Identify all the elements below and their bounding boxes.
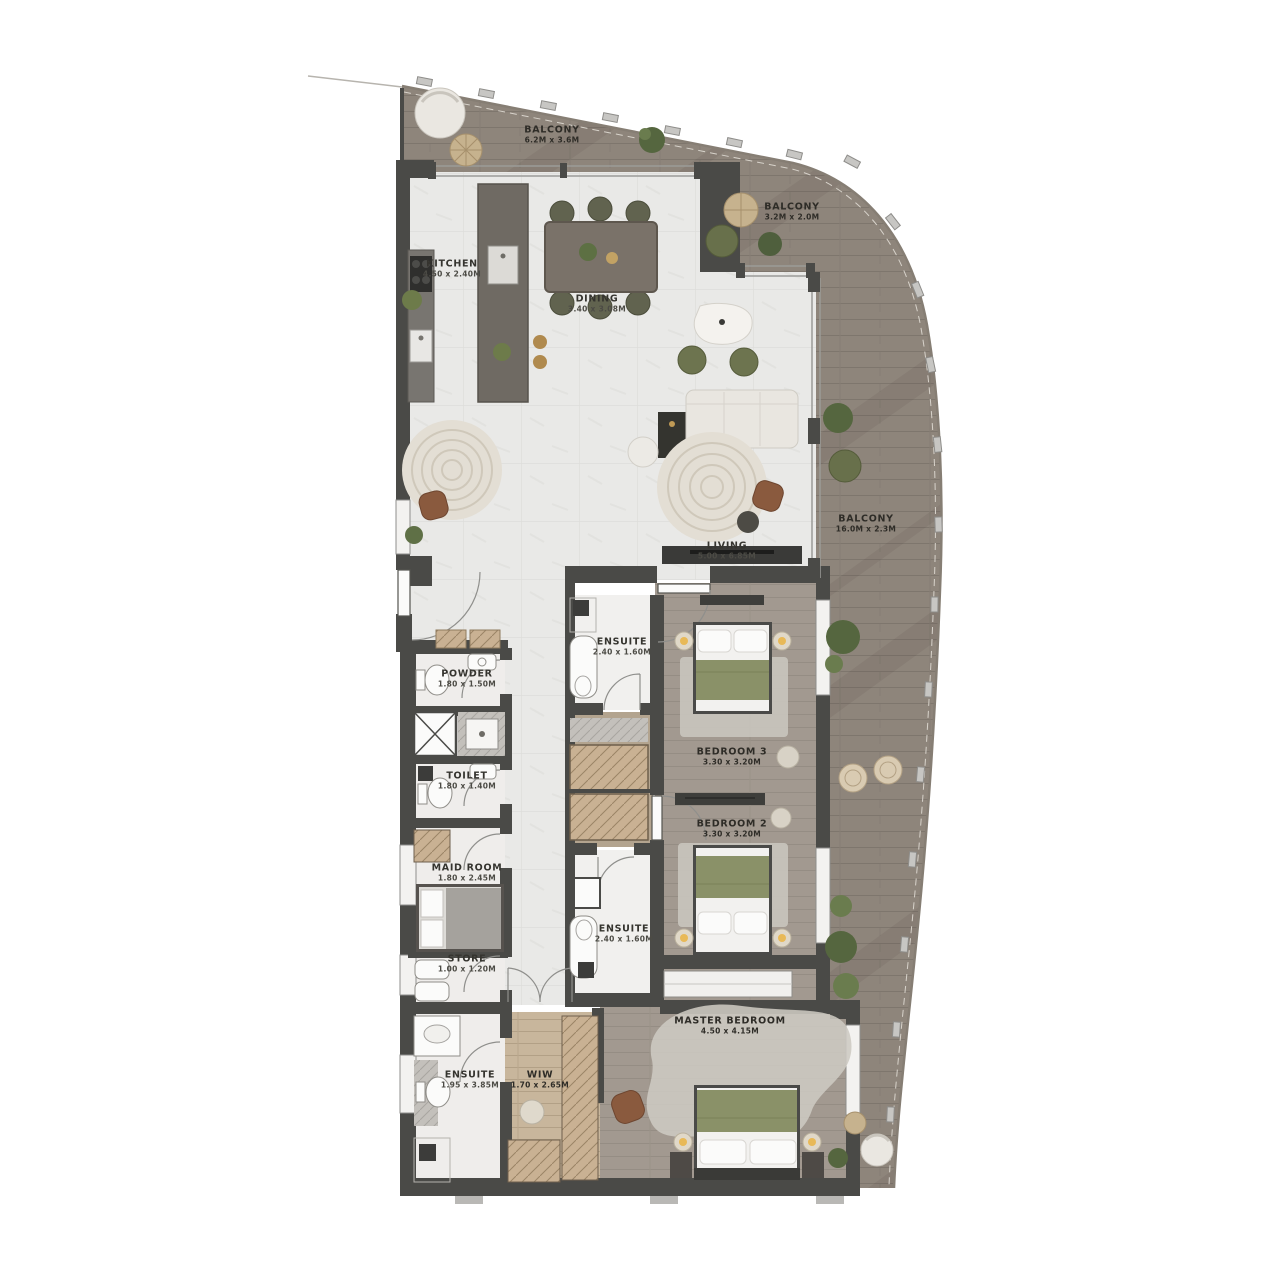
master-lamp-right-glow bbox=[808, 1138, 816, 1146]
kitchen-island bbox=[478, 184, 528, 402]
master-bed bbox=[694, 1085, 800, 1180]
wardrobe-divider bbox=[565, 789, 653, 793]
bedroom2-dresser bbox=[675, 793, 765, 805]
deck-chair-1 bbox=[839, 764, 867, 792]
kitchen-sink bbox=[410, 330, 432, 362]
ensuite2-shaft-box bbox=[574, 878, 600, 908]
deck-beanbag-upper-right bbox=[706, 225, 738, 257]
tv-console bbox=[662, 546, 802, 564]
deck-plant-2 bbox=[830, 895, 852, 917]
bedroom2-lamp-left-glow bbox=[680, 934, 688, 942]
island-sink bbox=[488, 246, 518, 284]
dining-centerpiece bbox=[579, 243, 597, 261]
wall-living-bedroom-a bbox=[575, 566, 657, 583]
bedroom2-door-leaf bbox=[652, 796, 662, 840]
wall-ensuitemaster-wiw-a bbox=[500, 1008, 512, 1038]
wardrobe-bedroom2 bbox=[570, 794, 648, 840]
window-store bbox=[400, 955, 416, 995]
window-bedroom3 bbox=[816, 600, 830, 695]
floor-plan-drawing bbox=[0, 0, 1280, 1280]
master-lamp-left-glow bbox=[679, 1138, 687, 1146]
wall-mid-vertical-a bbox=[650, 595, 664, 795]
bar-stool-2 bbox=[533, 355, 547, 369]
wiw-pouf bbox=[520, 1100, 544, 1124]
island-plant bbox=[493, 343, 511, 361]
deck-plant-1 bbox=[823, 403, 853, 433]
bedroom2-bed bbox=[693, 845, 772, 955]
deck-lounge-top bbox=[415, 88, 465, 138]
deck-bush-3 bbox=[828, 1148, 848, 1168]
deck-tree-1 bbox=[826, 620, 860, 654]
window-master-ensuite bbox=[400, 1055, 416, 1113]
deck-plant-top-2 bbox=[639, 128, 651, 140]
ensuite3-toilet bbox=[575, 676, 591, 696]
floor-plan: BALCONY 6.2M x 3.6M BALCONY 3.2M x 2.0M … bbox=[0, 0, 1280, 1280]
kitchen-faucet bbox=[419, 336, 424, 341]
deck-plant-upper-right bbox=[758, 232, 782, 256]
property-line bbox=[308, 76, 402, 87]
bedroom2-pouf bbox=[771, 808, 791, 828]
wall-vestibule-stub bbox=[410, 556, 432, 586]
console-decor bbox=[719, 319, 725, 325]
wall-ensuite2-top-b bbox=[634, 843, 655, 855]
facade-stubs-bottom bbox=[455, 1196, 844, 1204]
wall-entry-top bbox=[396, 556, 412, 570]
wall-ensuite2-bottom bbox=[565, 993, 660, 1007]
tv bbox=[690, 550, 774, 554]
ensuite3-shower-head bbox=[573, 600, 589, 616]
jute-rug-kitchen bbox=[402, 420, 502, 520]
service-shaft bbox=[414, 712, 505, 756]
plant-greatroom bbox=[405, 526, 423, 544]
ensuite2-shower-head bbox=[578, 962, 594, 978]
wiw-wardrobe-bottom bbox=[508, 1140, 560, 1182]
bedroom3-bed bbox=[693, 622, 772, 714]
ensuite2-toilet bbox=[576, 920, 592, 940]
master-toilet bbox=[426, 1077, 450, 1107]
bedroom3-dresser bbox=[700, 595, 764, 605]
ensuite-bedroom2-fixtures bbox=[570, 878, 600, 978]
wardrobe-bedroom3 bbox=[570, 745, 648, 791]
entry-door-leaf bbox=[398, 570, 410, 616]
armchair-white bbox=[628, 437, 658, 467]
wall-corridor-c bbox=[500, 804, 512, 834]
wardrobes-band bbox=[565, 718, 653, 840]
deck-table-bottom bbox=[844, 1112, 866, 1134]
wardrobe-top-strip bbox=[570, 718, 648, 742]
wiw-wardrobe-right bbox=[562, 1016, 598, 1180]
deck-beanbag-right bbox=[829, 450, 861, 482]
bedroom3-door-leaf bbox=[658, 584, 710, 593]
wall-bottom bbox=[400, 1178, 860, 1196]
dining-plate bbox=[606, 252, 618, 264]
bedroom3-lamp-right-glow bbox=[778, 637, 786, 645]
bedroom3-pouf bbox=[777, 746, 799, 768]
window-bedroom2 bbox=[816, 848, 830, 943]
media-cabinet-handle bbox=[669, 421, 675, 427]
wall-bed2-headboard bbox=[660, 955, 830, 969]
wall-mid-vertical-b bbox=[650, 840, 664, 1000]
bedroom2-lamp-right-glow bbox=[778, 934, 786, 942]
wall-corridor-a bbox=[500, 648, 512, 660]
armchair-olive-2 bbox=[730, 348, 758, 376]
deck-chair-2 bbox=[874, 756, 902, 784]
wall-toilet-maid bbox=[408, 818, 508, 828]
pouf-dark bbox=[737, 511, 759, 533]
bedroom3-lamp-left-glow bbox=[680, 637, 688, 645]
master-shower-head bbox=[419, 1144, 436, 1161]
wall-ensuite3-bottom-a bbox=[565, 703, 603, 715]
kitchen-plant bbox=[402, 290, 422, 310]
dining-table bbox=[545, 222, 657, 292]
armchair-olive-1 bbox=[678, 346, 706, 374]
window-greatroom-left bbox=[396, 500, 410, 554]
island-faucet bbox=[501, 254, 506, 259]
bar-stool-1 bbox=[533, 335, 547, 349]
master-nightstand-left bbox=[670, 1152, 692, 1178]
deck-bush-2 bbox=[833, 973, 859, 999]
wall-ensuite2-top-a bbox=[565, 843, 597, 855]
master-nightstand-right bbox=[802, 1152, 824, 1178]
deck-bush-1 bbox=[825, 655, 843, 673]
wall-store-bottom bbox=[408, 1002, 508, 1014]
dining-set bbox=[545, 197, 657, 319]
master-toilet-tank bbox=[416, 1082, 425, 1102]
deck-tree-2 bbox=[825, 931, 857, 963]
master-basin bbox=[424, 1025, 450, 1043]
